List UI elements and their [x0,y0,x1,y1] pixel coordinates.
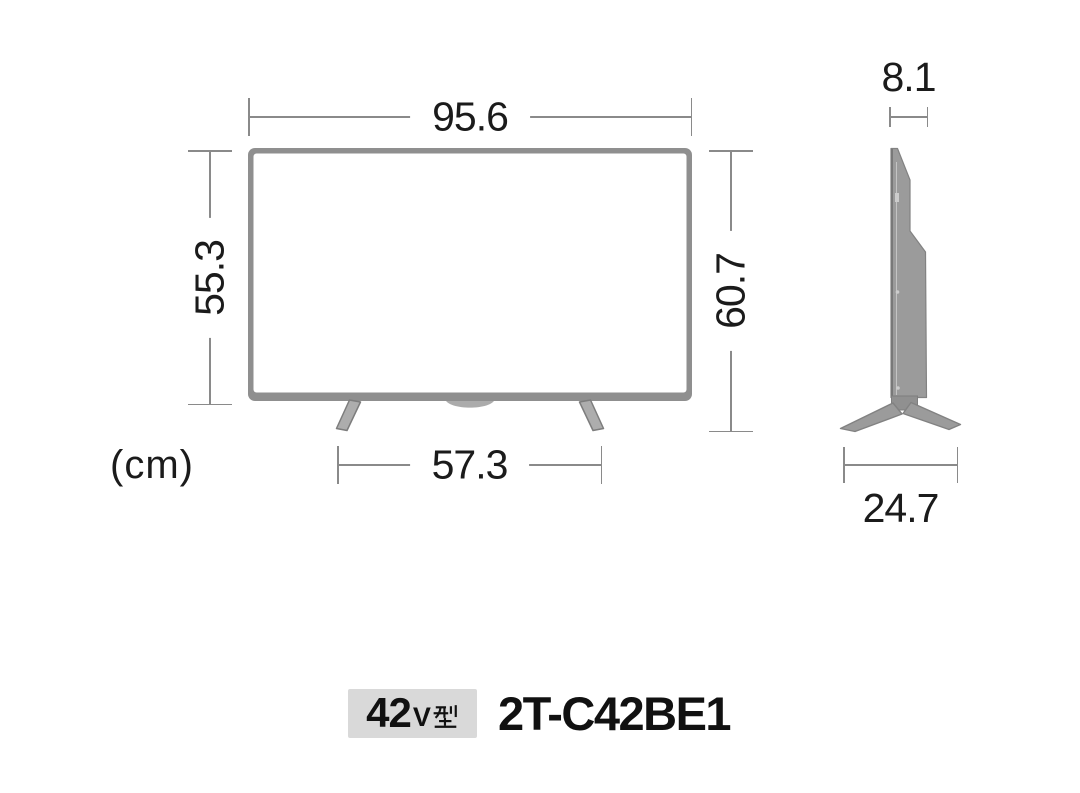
dimension-line [891,116,927,118]
tv-front-view [248,148,692,431]
dimension-depth: 8.1 [889,107,928,127]
dimension-width: 95.6 [248,98,692,136]
dimension-line [845,464,957,466]
kanji-gata-icon [432,703,459,730]
dimension-tick [691,98,693,136]
tv-side-rear-foot [903,403,961,430]
dimension-tick [957,447,959,483]
tv-spec-diagram: 95.6 55.3 60.7 57.3 8.1 24.7 (cm) [0,0,1080,793]
dimension-label-total-height: 60.7 [711,231,752,351]
tv-side-front-foot [841,403,903,432]
tv-front-left-leg [337,400,361,431]
dimension-label-width: 95.6 [410,97,530,138]
screen-size-unit-v: V [413,705,431,731]
product-label: 42 V 2T-C42BE1 [348,689,730,738]
unit-note: (cm) [110,441,194,489]
screen-size-number: 42 [366,695,411,731]
tv-side-notch [895,193,899,202]
dimension-total-height: 60.7 [709,150,753,432]
model-number: 2T-C42BE1 [498,690,730,737]
dimension-label-depth: 8.1 [882,57,936,98]
dimension-stand-width: 57.3 [337,446,602,484]
tv-front-right-leg [580,400,604,431]
tv-side-view [841,149,961,432]
dimension-stand-depth: 24.7 [843,447,958,483]
dimension-tick [709,431,753,433]
tv-side-screw-lower [896,386,900,390]
dimension-tick [601,446,603,484]
dimension-tick [927,107,929,127]
tv-screen [254,154,687,393]
dimension-tick [188,404,232,406]
dimension-label-stand-depth: 24.7 [863,488,939,529]
dimension-label-stand-width: 57.3 [410,445,530,486]
dimension-label-panel-height: 55.3 [190,218,231,338]
tv-side-screw-upper [896,290,900,294]
screen-size-badge: 42 V [348,689,477,738]
dimension-panel-height: 55.3 [188,150,232,405]
